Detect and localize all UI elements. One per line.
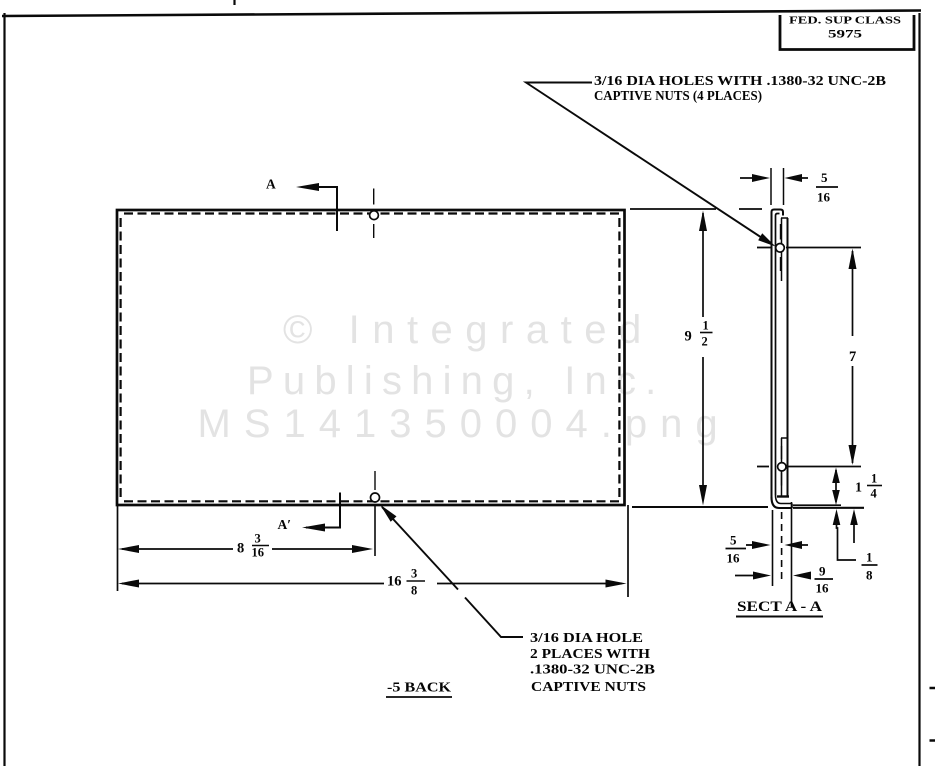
svg-text:16: 16 xyxy=(252,546,265,560)
svg-text:© Integrated: © Integrated xyxy=(283,308,654,352)
svg-text:3: 3 xyxy=(255,532,261,546)
svg-text:3/16 DIA HOLE: 3/16 DIA HOLE xyxy=(530,631,643,646)
svg-text:2: 2 xyxy=(702,335,708,349)
svg-text:8: 8 xyxy=(237,541,244,557)
svg-text:SECT A - A: SECT A - A xyxy=(737,599,823,615)
svg-text:CAPTIVE NUTS (4 PLACES): CAPTIVE NUTS (4 PLACES) xyxy=(594,89,762,104)
svg-text:1: 1 xyxy=(866,550,873,565)
svg-text:1: 1 xyxy=(703,319,709,333)
svg-text:CAPTIVE NUTS: CAPTIVE NUTS xyxy=(531,680,646,695)
svg-text:FED. SUP CLASS: FED. SUP CLASS xyxy=(789,15,901,27)
svg-text:16: 16 xyxy=(817,190,831,205)
svg-text:A: A xyxy=(266,177,276,192)
svg-text:-5 BACK: -5 BACK xyxy=(387,681,451,696)
svg-text:2 PLACES WITH: 2 PLACES WITH xyxy=(530,647,650,662)
svg-text:16: 16 xyxy=(816,581,830,596)
svg-text:.1380-32 UNC-2B: .1380-32 UNC-2B xyxy=(530,663,655,678)
svg-text:MS141350004.png: MS141350004.png xyxy=(198,402,731,446)
svg-text:5: 5 xyxy=(730,533,737,548)
svg-text:3: 3 xyxy=(411,567,417,581)
svg-text:7: 7 xyxy=(849,349,856,365)
svg-text:4: 4 xyxy=(871,487,878,501)
svg-text:16: 16 xyxy=(727,551,741,566)
svg-text:9: 9 xyxy=(685,329,692,345)
svg-text:8: 8 xyxy=(866,568,873,583)
svg-text:Publishing, Inc.: Publishing, Inc. xyxy=(247,359,665,403)
svg-text:9: 9 xyxy=(819,564,826,579)
svg-text:3/16 DIA HOLES WITH .1380-32 U: 3/16 DIA HOLES WITH .1380-32 UNC-2B xyxy=(594,74,886,89)
svg-text:1: 1 xyxy=(855,481,862,496)
svg-text:5: 5 xyxy=(821,170,828,185)
svg-text:1: 1 xyxy=(871,472,877,486)
svg-text:5975: 5975 xyxy=(828,29,862,41)
svg-text:A′: A′ xyxy=(278,517,292,532)
svg-text:16: 16 xyxy=(387,574,402,590)
svg-text:8: 8 xyxy=(411,584,417,598)
